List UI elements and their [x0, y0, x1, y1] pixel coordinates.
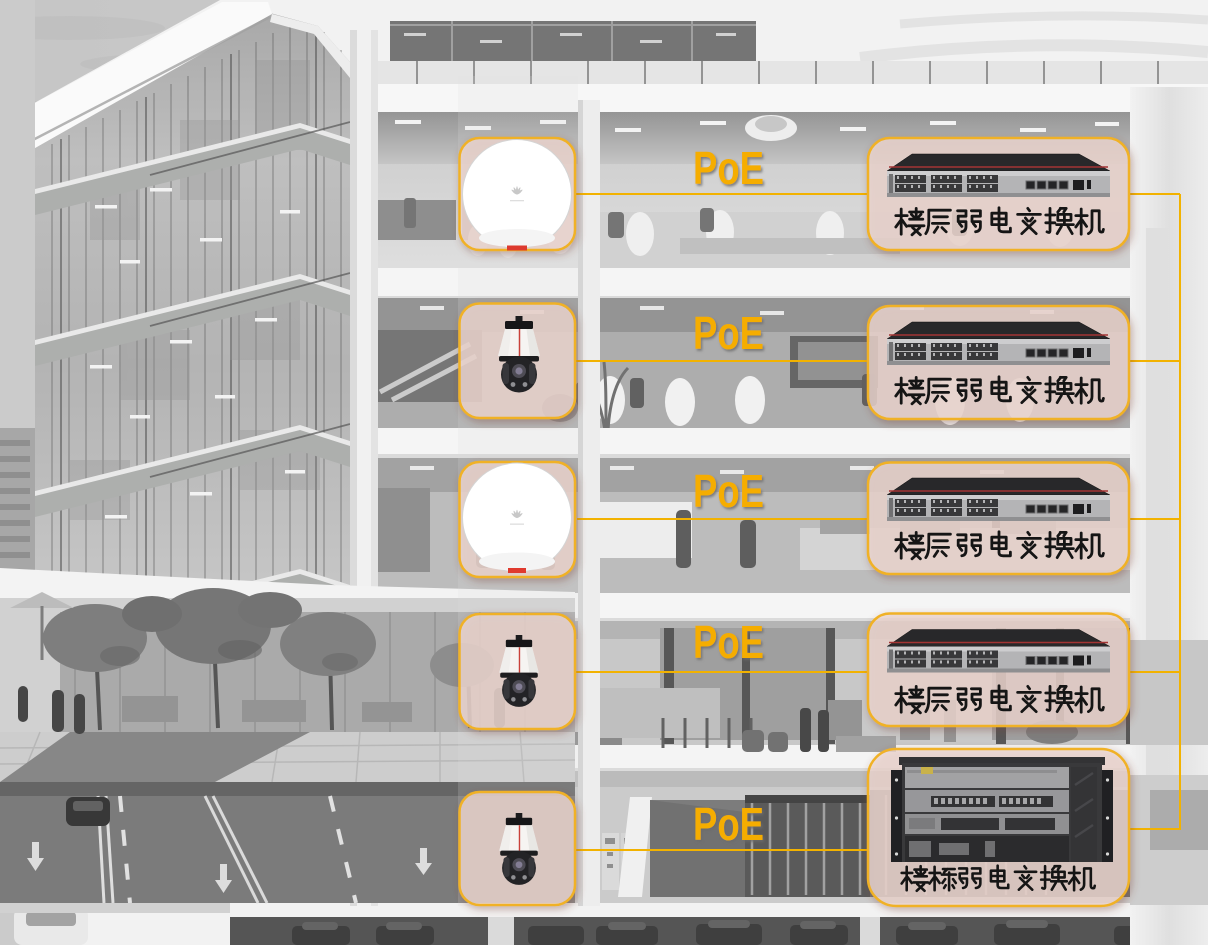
svg-text:PoE: PoE	[693, 798, 764, 850]
svg-text:PoE: PoE	[693, 142, 764, 194]
svg-text:PoE: PoE	[693, 307, 764, 359]
svg-text:PoE: PoE	[693, 465, 764, 517]
svg-text:PoE: PoE	[693, 616, 764, 668]
